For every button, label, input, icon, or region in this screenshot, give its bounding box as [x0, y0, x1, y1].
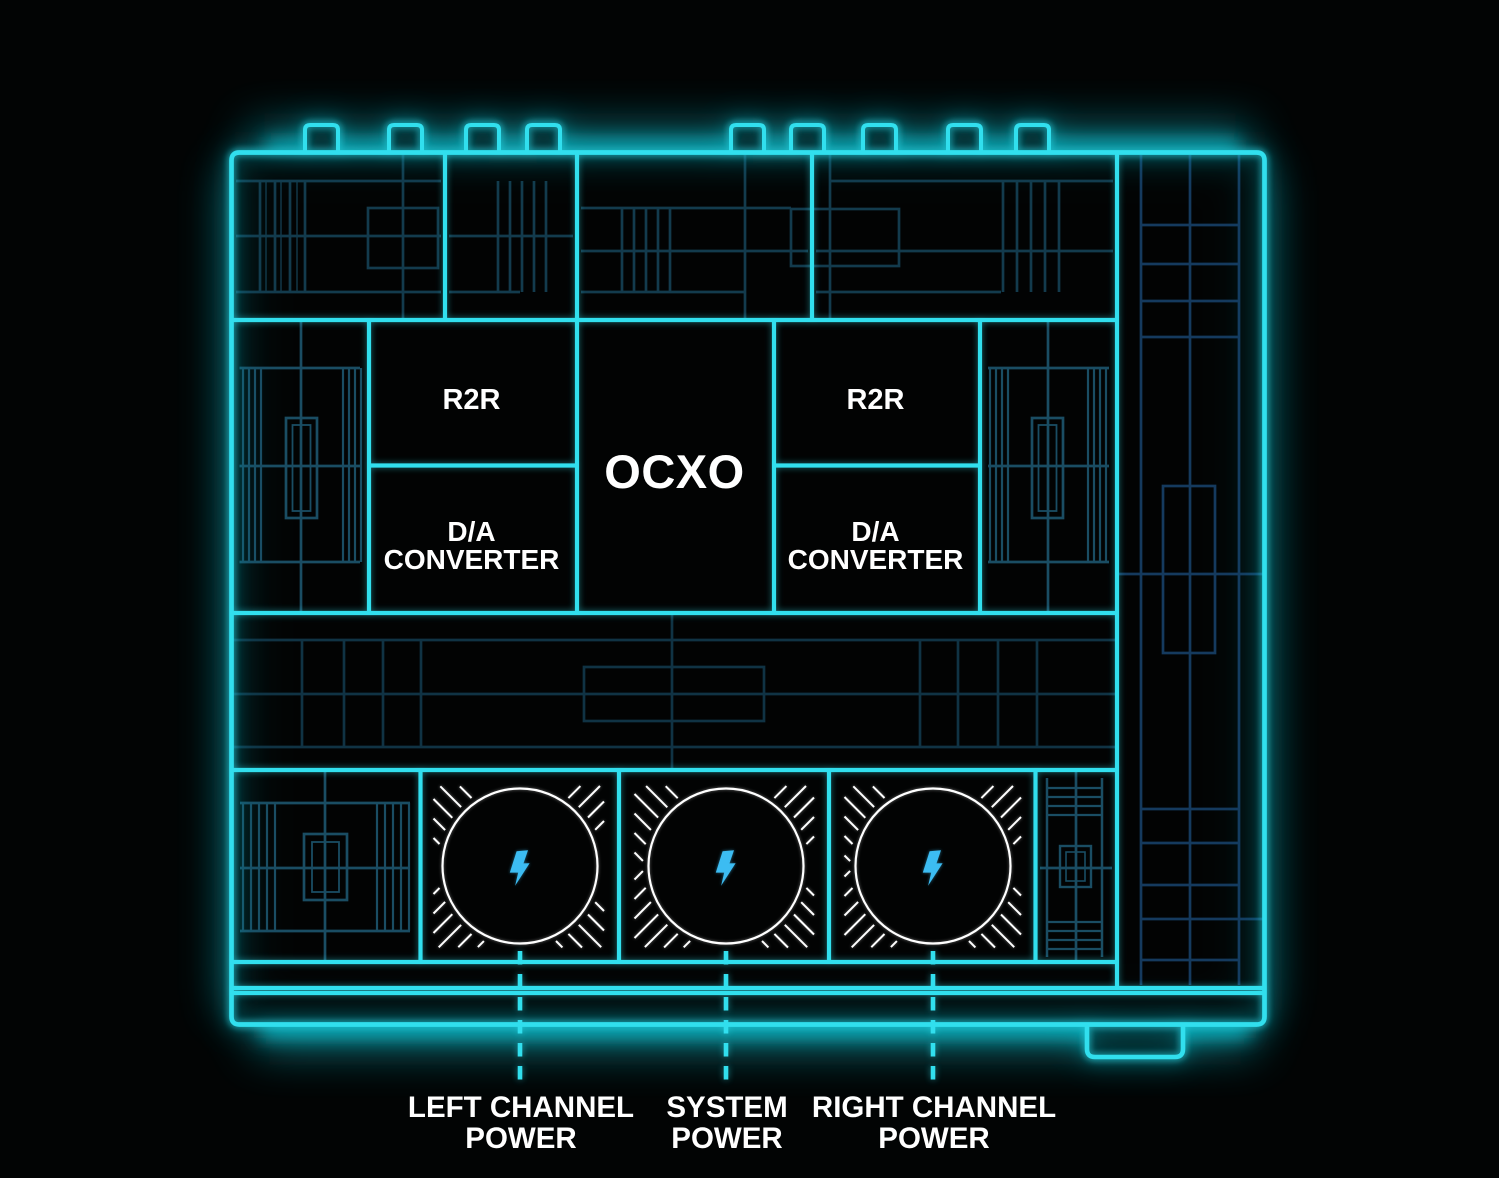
- svg-text:R2R: R2R: [442, 384, 500, 416]
- svg-text:D/A: D/A: [447, 516, 495, 547]
- svg-text:POWER: POWER: [878, 1122, 989, 1155]
- svg-text:R2R: R2R: [846, 384, 904, 416]
- svg-text:OCXO: OCXO: [604, 445, 744, 498]
- svg-text:CONVERTER: CONVERTER: [384, 544, 560, 575]
- svg-text:LEFT CHANNEL: LEFT CHANNEL: [408, 1091, 634, 1124]
- svg-text:POWER: POWER: [671, 1122, 782, 1155]
- svg-text:D/A: D/A: [851, 516, 899, 547]
- svg-text:SYSTEM: SYSTEM: [666, 1091, 787, 1124]
- svg-text:CONVERTER: CONVERTER: [788, 544, 964, 575]
- svg-text:RIGHT CHANNEL: RIGHT CHANNEL: [812, 1091, 1056, 1124]
- svg-text:POWER: POWER: [465, 1122, 576, 1155]
